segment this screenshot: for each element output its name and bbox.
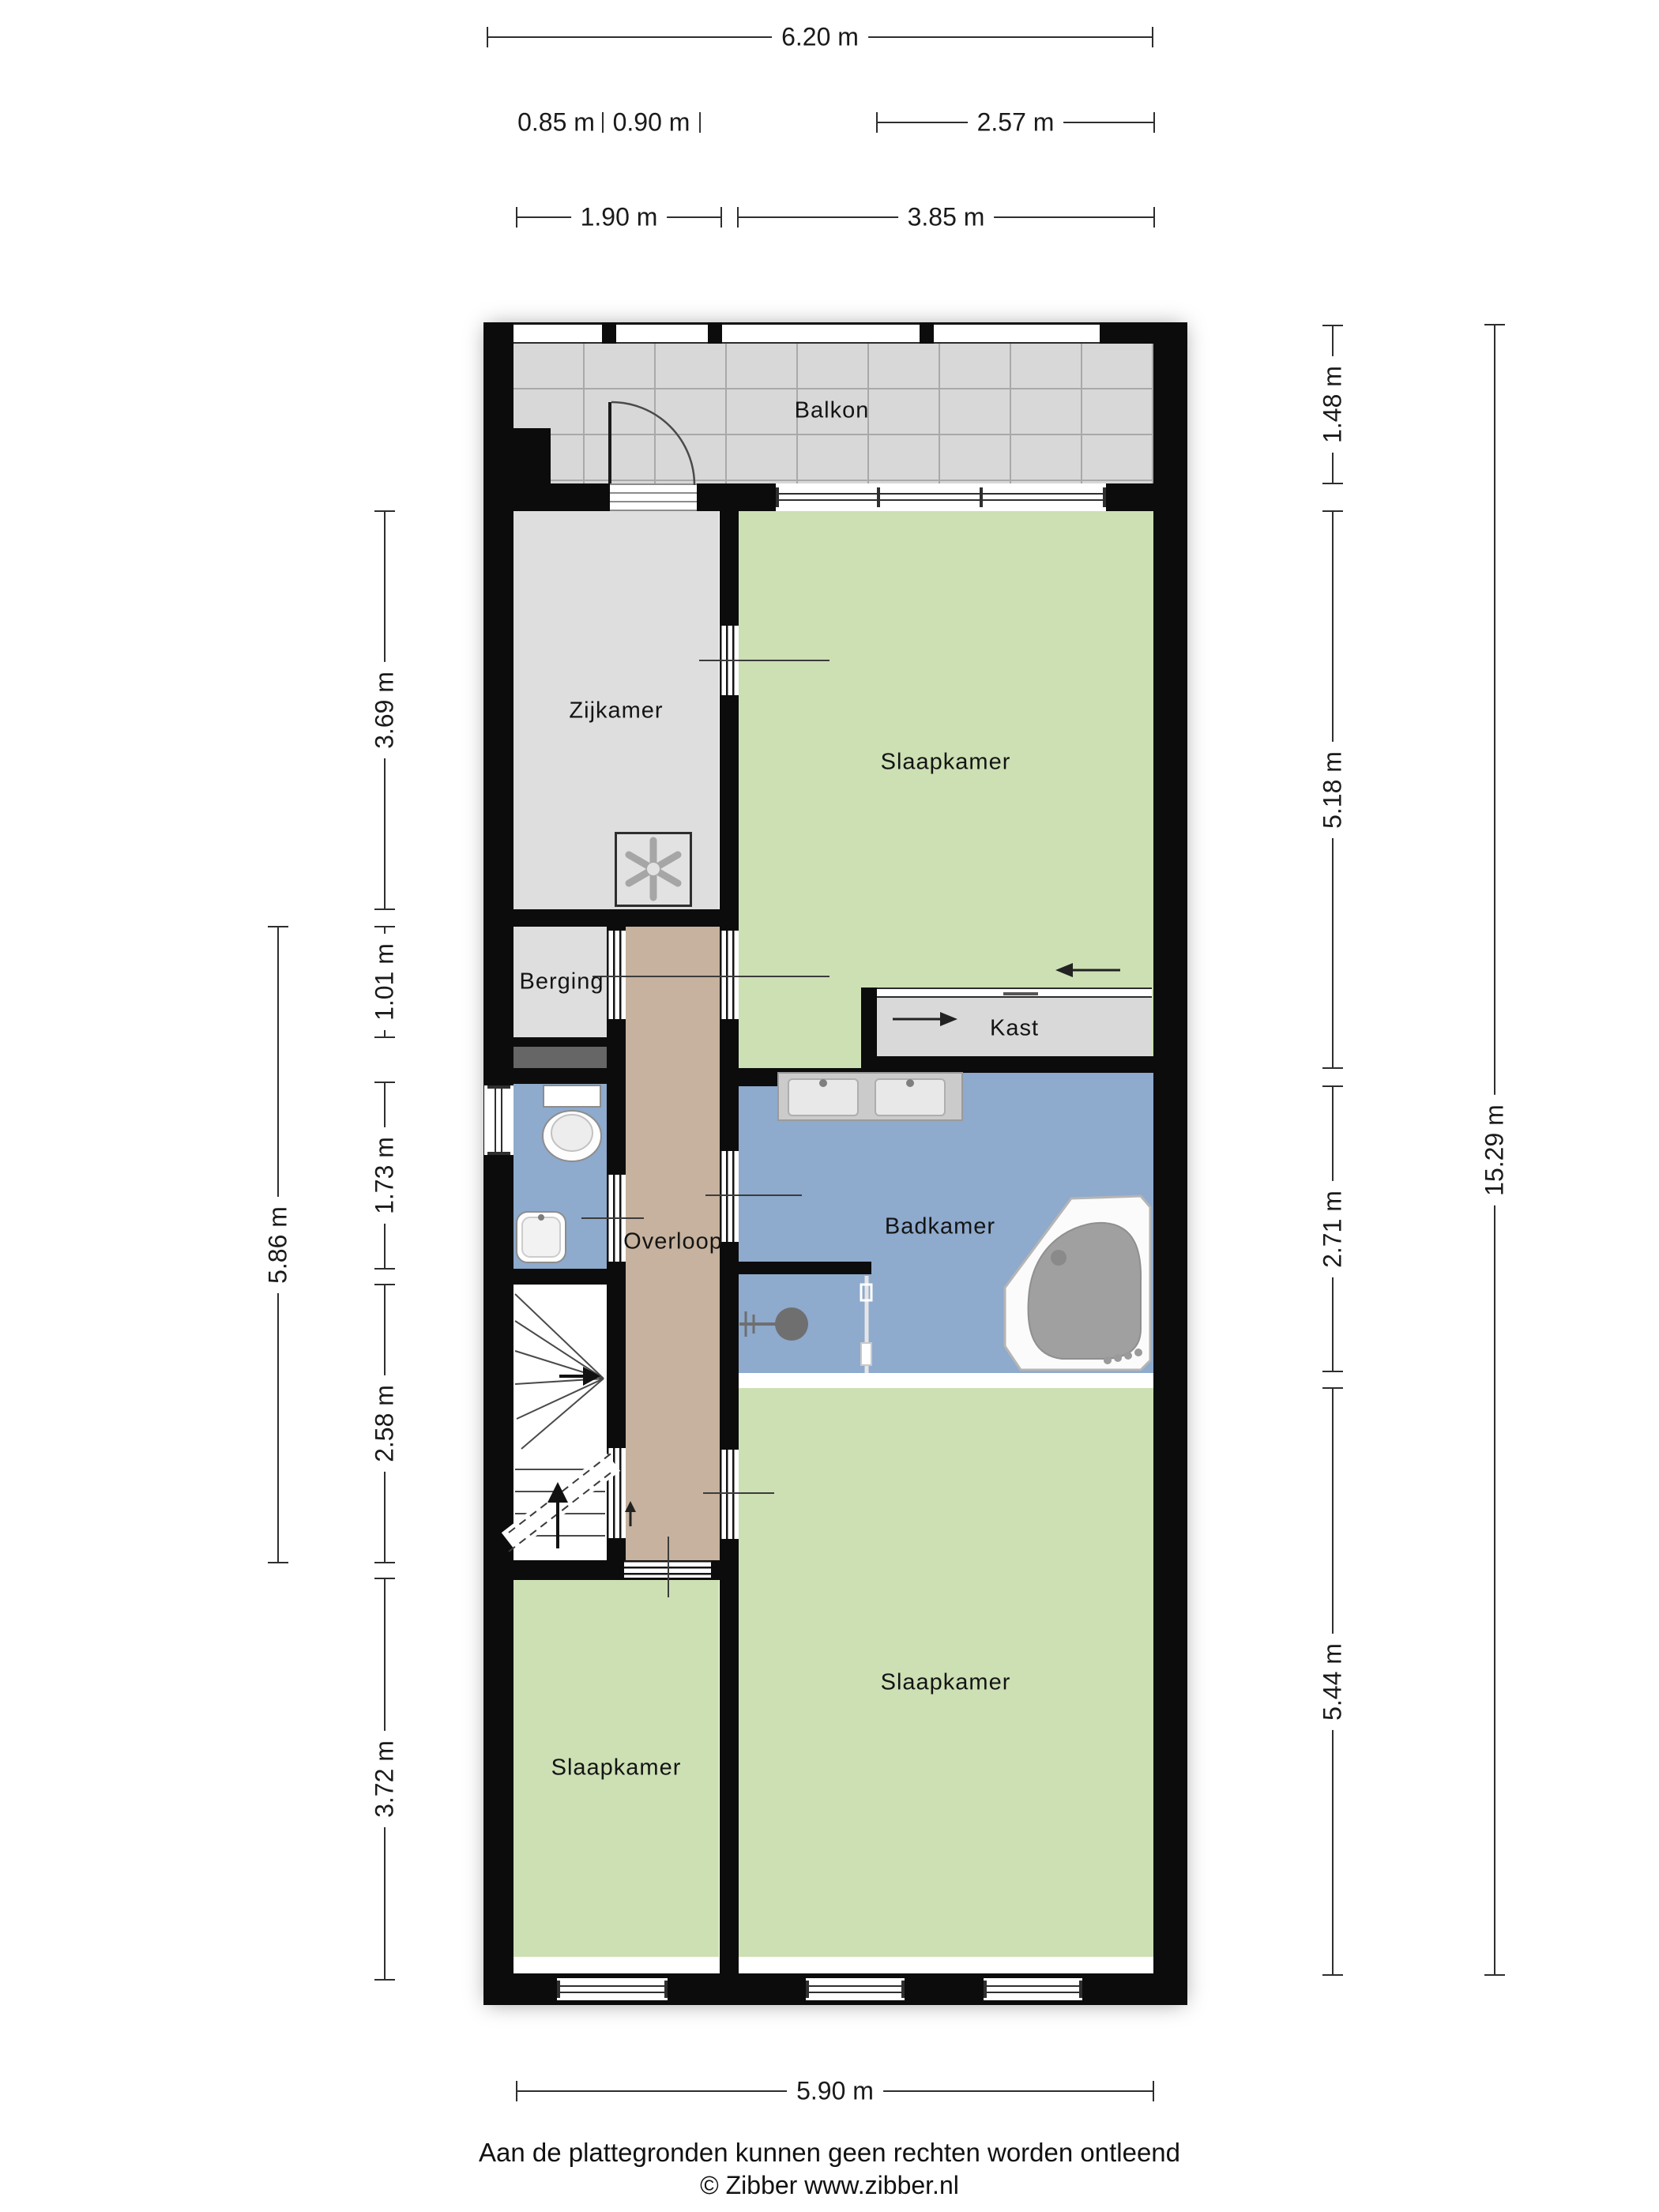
fan-icon (629, 841, 678, 897)
dim-tick (1322, 325, 1343, 326)
dim-label: 0.85 m (508, 108, 604, 137)
kast-arrow-left (1055, 963, 1120, 977)
dim-tick (1153, 207, 1155, 228)
label-kast: Kast (990, 1016, 1039, 1042)
dim-tick (374, 926, 395, 927)
dim-tick (1322, 1067, 1343, 1069)
dim-tick (374, 510, 395, 512)
dim-tick (374, 1036, 395, 1038)
toilet-icon (543, 1085, 601, 1161)
dim-tick (1153, 112, 1155, 133)
dim-label: 0.90 m (604, 108, 700, 137)
floorplan-page: { "rooms": { "balkon": "Balkon", "zijkam… (0, 0, 1659, 2212)
dim-tick (374, 1284, 395, 1285)
footer-disclaimer: Aan de plattegronden kunnen geen rechten… (479, 2138, 1180, 2168)
label-badkamer: Badkamer (885, 1214, 995, 1240)
fixtures-layer (0, 0, 1659, 2212)
dim-tick (737, 207, 739, 228)
dim-label: 5.90 m (787, 2077, 883, 2106)
label-zijkamer: Zijkamer (569, 698, 663, 724)
dim-tick (374, 1268, 395, 1270)
dim-tick (374, 1082, 395, 1083)
dim-tick (1484, 1974, 1505, 1976)
dim-tick (1484, 324, 1505, 325)
dim-label: 1.90 m (571, 203, 668, 232)
dim-label: 5.44 m (1319, 1634, 1348, 1730)
balcony-door-icon (610, 402, 694, 485)
dim-label: 15.29 m (1480, 1095, 1510, 1206)
dim-label: 5.86 m (264, 1197, 293, 1293)
dim-tick (1322, 1371, 1343, 1372)
dim-tick (1322, 510, 1343, 512)
bathtub-icon (1005, 1196, 1150, 1370)
dim-label: 2.58 m (371, 1375, 400, 1472)
dim-label: 2.57 m (968, 108, 1064, 137)
dim-tick (268, 1562, 288, 1563)
dim-label: 1.01 m (371, 934, 400, 1030)
dim-tick (374, 1578, 395, 1579)
dim-tick (374, 1562, 395, 1563)
dim-tick (374, 1979, 395, 1981)
label-balkon: Balkon (795, 398, 870, 424)
overloop-small-arrow (625, 1501, 636, 1526)
shower-icon (739, 1276, 871, 1373)
dim-label: 6.20 m (772, 23, 868, 52)
dim-tick (268, 926, 288, 927)
footer-copyright: © Zibber www.zibber.nl (700, 2171, 959, 2200)
dim-label: 3.72 m (371, 1731, 400, 1827)
label-overloop: Overloop (623, 1229, 723, 1255)
dim-tick (1152, 27, 1153, 47)
dim-label: 1.73 m (371, 1127, 400, 1224)
dim-tick (487, 27, 488, 47)
dim-label: 1.48 m (1319, 356, 1348, 453)
dim-tick (516, 207, 517, 228)
dim-label: 5.18 m (1319, 742, 1348, 838)
label-slaapkamer-bottom-right: Slaapkamer (881, 1670, 1011, 1696)
dim-tick (720, 207, 722, 228)
dim-tick (1322, 483, 1343, 484)
label-berging: Berging (520, 969, 604, 995)
dim-tick (374, 908, 395, 910)
dim-tick (1322, 1974, 1343, 1976)
dim-tick (1153, 2081, 1154, 2101)
dim-tick (1322, 1387, 1343, 1389)
dim-label: 2.71 m (1319, 1181, 1348, 1277)
door-leader-lines (581, 660, 829, 1597)
dim-tick (516, 2081, 517, 2101)
toilet-sink-icon (517, 1212, 566, 1262)
dim-label: 3.69 m (371, 662, 400, 758)
kast-arrow-right (893, 1012, 957, 1026)
dim-tick (876, 112, 878, 133)
label-slaapkamer-bottom-left: Slaapkamer (551, 1755, 682, 1781)
dim-tick (1322, 1085, 1343, 1087)
label-slaapkamer-top: Slaapkamer (881, 750, 1011, 776)
dim-label: 3.85 m (898, 203, 995, 232)
washbasin-cabinet-icon (778, 1073, 962, 1120)
